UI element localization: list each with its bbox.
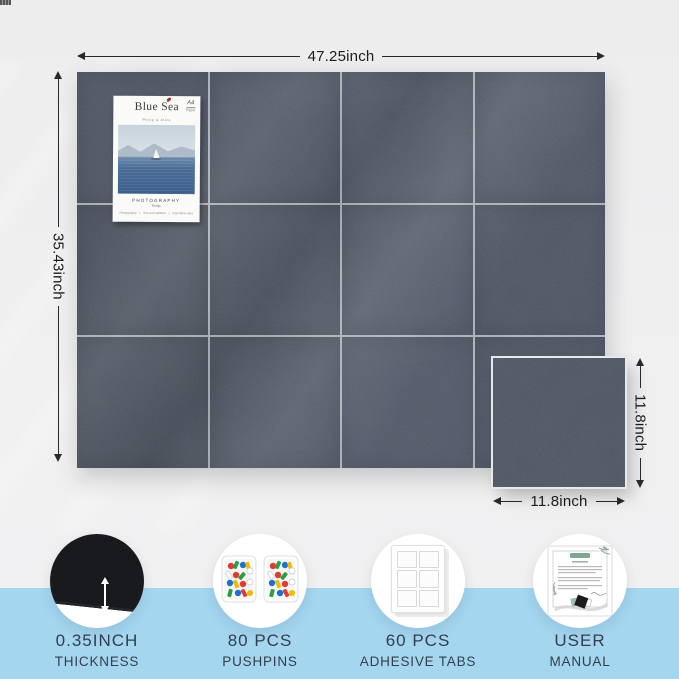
poster-header: Blue Sea A4 Paper: [118, 101, 195, 118]
arrow-down-icon: [54, 454, 62, 462]
poster-footer-item: Sea and sailboat: [143, 211, 165, 215]
poster-title: Blue Sea: [118, 101, 195, 114]
arrow-right-icon: [617, 497, 625, 505]
tile-height-dimension: 11.8inch: [632, 358, 648, 488]
board-height-dimension: 35.43inch: [50, 71, 66, 462]
pinned-poster: Blue Sea A4 Paper Philip & Alice PHOTOGR…: [113, 96, 201, 223]
poster-caption-sub: Philip: [118, 204, 195, 209]
adhesive-tabs-feature-circle: [371, 534, 465, 628]
felt-tile: [77, 337, 208, 468]
a4-label: A4: [186, 101, 195, 108]
poster-subtitle: Philip & Alice: [118, 118, 195, 123]
feature-name: MANUAL: [490, 654, 670, 669]
felt-tile: [77, 205, 208, 336]
arrow-left-icon: [493, 497, 501, 505]
sea: [118, 156, 195, 194]
sailboat-hull: [151, 158, 161, 160]
feature-value: 0.35INCH: [7, 631, 187, 651]
tile-width-label: 11.8inch: [522, 493, 595, 510]
user-manual-feature-circle: [533, 534, 627, 628]
felt-tile: [342, 205, 473, 336]
a4-sublabel: Paper: [186, 108, 195, 113]
arrow-down-icon: [636, 480, 644, 488]
feature-name: PUSHPINS: [170, 654, 350, 669]
feature-name: ADHESIVE TABS: [328, 654, 508, 669]
single-felt-tile: [493, 358, 625, 487]
felt-tile: [210, 205, 341, 336]
pushpins-label: 80 PCS PUSHPINS: [170, 631, 350, 669]
arrow-up-icon: [54, 71, 62, 79]
thickness-feature-circle: [50, 534, 144, 628]
separator: |: [139, 211, 140, 215]
board-width-dimension: 47.25inch: [77, 48, 605, 64]
felt-texture-mottle: [493, 358, 625, 487]
feature-name: THICKNESS: [7, 654, 187, 669]
poster-footer: Photography | Sea and sailboat | Inspira…: [118, 211, 195, 216]
sea-photo: [118, 125, 195, 195]
user-manual-icon: [547, 542, 613, 620]
thickness-arrow-icon: [104, 583, 106, 607]
tile-height-label: 11.8inch: [632, 388, 649, 457]
poster-caption: PHOTOGRAPHY: [118, 198, 195, 204]
pushpins-feature-circle: [213, 534, 307, 628]
arrow-right-icon: [597, 52, 605, 60]
adhesive-tabs-icon: [391, 545, 445, 613]
board-height-label: 35.43inch: [50, 227, 67, 306]
board-width-label: 47.25inch: [300, 48, 383, 65]
felt-tile: [210, 337, 341, 468]
a4-paper-mark: A4 Paper: [186, 101, 195, 113]
felt-thickness-icon: [50, 534, 144, 614]
poster-footer-item: Inspiration idea: [172, 211, 192, 215]
product-image: Blue Sea A4 Paper Philip & Alice PHOTOGR…: [0, 0, 679, 679]
felt-tile: [342, 72, 473, 203]
user-manual-label: USER MANUAL: [490, 631, 670, 669]
corner-artifact: [0, 0, 11, 5]
feature-value: 80 PCS: [170, 631, 350, 651]
feature-value: 60 PCS: [328, 631, 508, 651]
poster-footer-item: Photography: [119, 211, 136, 215]
felt-tile: [475, 72, 606, 203]
feature-value: USER: [490, 631, 670, 651]
felt-tile: [342, 337, 473, 468]
pushpins-icon: [221, 555, 299, 607]
arrow-left-icon: [77, 52, 85, 60]
felt-texture-noise: [493, 358, 625, 487]
felt-tile: [210, 72, 341, 203]
arrow-up-icon: [636, 358, 644, 366]
tile-width-dimension: 11.8inch: [493, 493, 625, 509]
separator: |: [169, 211, 170, 215]
felt-tile: [475, 205, 606, 336]
thickness-label: 0.35INCH THICKNESS: [7, 631, 187, 669]
adhesive-tabs-label: 60 PCS ADHESIVE TABS: [328, 631, 508, 669]
